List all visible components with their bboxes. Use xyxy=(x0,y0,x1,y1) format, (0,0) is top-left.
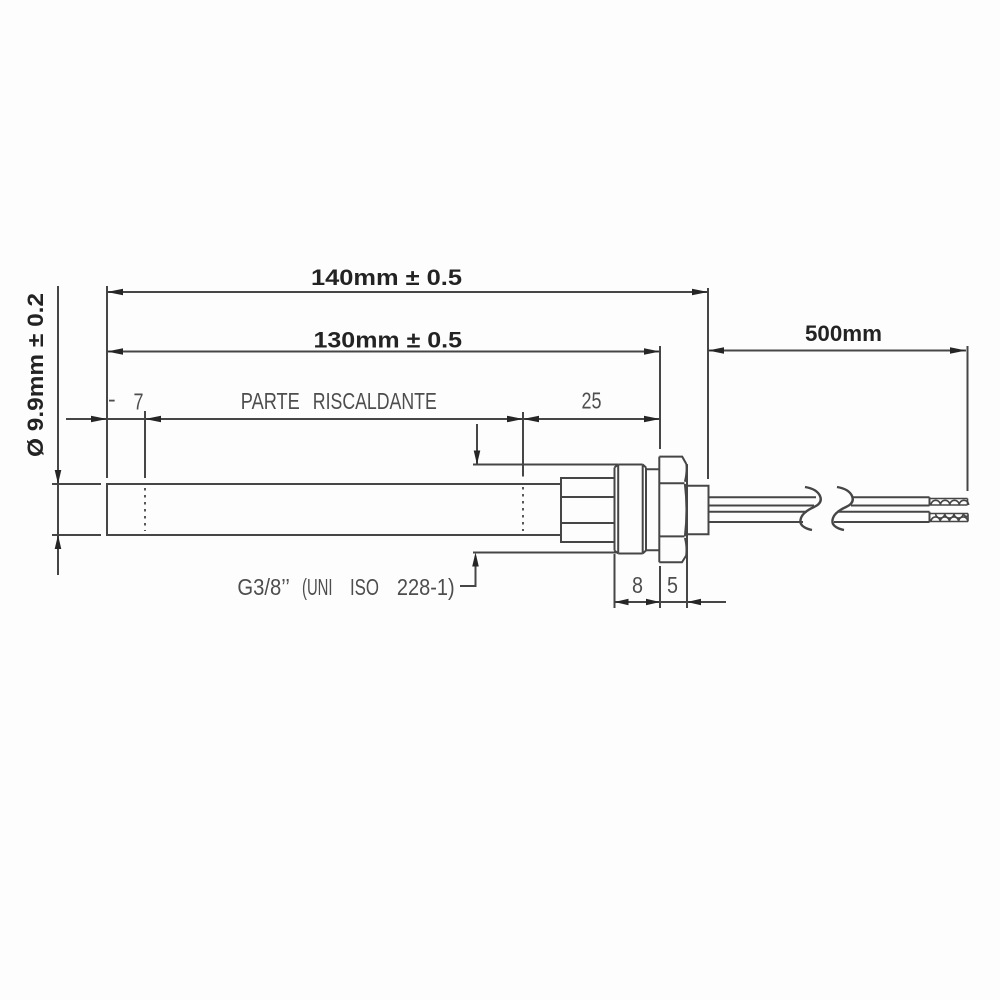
svg-text:500mm: 500mm xyxy=(805,321,882,346)
svg-text:G3/8’’(UNIISO228-1): G3/8’’(UNIISO228-1) xyxy=(237,574,454,600)
svg-text:130mm ± 0.5: 130mm ± 0.5 xyxy=(314,328,463,353)
svg-text:-: - xyxy=(108,386,116,412)
svg-text:5: 5 xyxy=(667,572,678,598)
svg-text:8: 8 xyxy=(632,572,643,598)
svg-text:7: 7 xyxy=(134,389,144,415)
svg-text:PARTERISCALDANTE: PARTERISCALDANTE xyxy=(241,388,437,414)
svg-text:Ø 9.9mm ± 0.2: Ø 9.9mm ± 0.2 xyxy=(23,293,48,457)
svg-text:25: 25 xyxy=(582,388,602,414)
svg-text:140mm ± 0.5: 140mm ± 0.5 xyxy=(311,265,462,290)
